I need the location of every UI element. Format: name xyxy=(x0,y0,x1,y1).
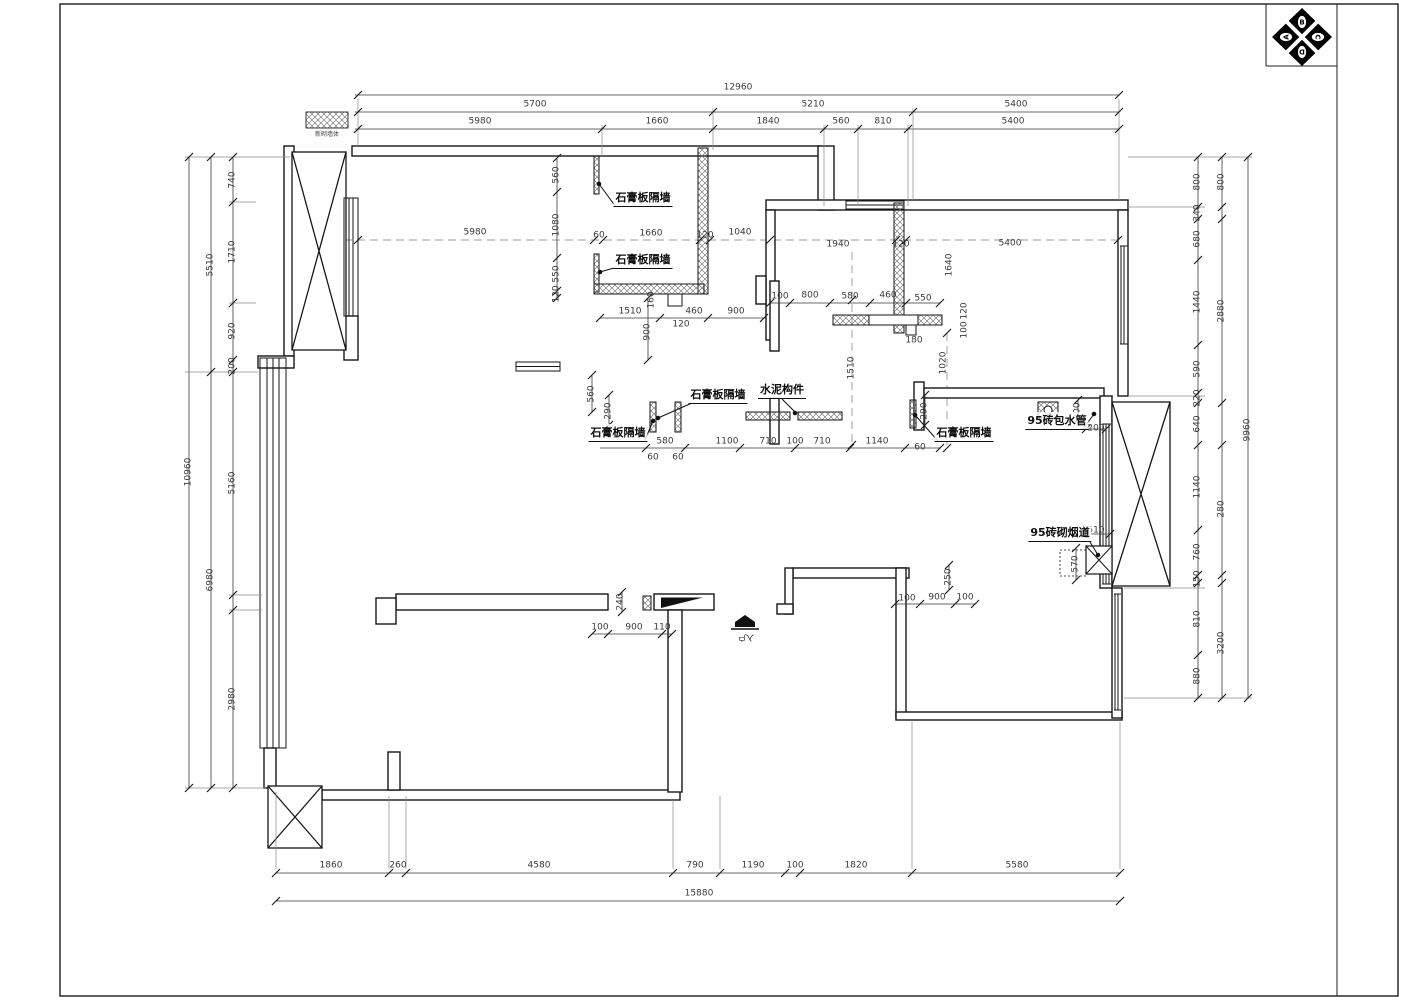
dim-label: 800 xyxy=(801,292,818,301)
dim-label: 1100 xyxy=(716,438,739,447)
dim-label: 1140 xyxy=(866,438,889,447)
dim-label: 760 xyxy=(1194,543,1203,560)
dim-label: 100 xyxy=(591,624,608,633)
dim-label: 250 xyxy=(945,568,954,585)
dim-label: 1860 xyxy=(320,862,343,871)
gypsum-wall-label: 石膏板隔墙 xyxy=(935,424,994,442)
dim-label: 5580 xyxy=(1006,862,1029,871)
dim-label: 120 xyxy=(892,241,909,250)
gypsum-wall-label: 石膏板隔墙 xyxy=(614,251,673,269)
dim-label: 1040 xyxy=(729,229,752,238)
dim-label: 5980 xyxy=(464,229,487,238)
entry-marker xyxy=(731,615,759,629)
dim-label: 290 xyxy=(605,402,614,419)
company-logo: A B C D xyxy=(1272,8,1332,66)
brick-flue-label: 95砖砌烟道 xyxy=(1028,524,1091,542)
dim-label: 160 xyxy=(648,291,657,308)
dim-label: 110 xyxy=(653,624,670,633)
dim-label: 560 xyxy=(553,166,562,183)
logo-letter-c: C xyxy=(1314,34,1322,39)
dim-label: 580 xyxy=(841,293,858,302)
floor-plan-sheet: A B C D xyxy=(0,0,1415,1000)
dim-label: 120 xyxy=(553,285,562,302)
dim-label: 60 xyxy=(672,454,683,463)
dim-label: 2980 xyxy=(229,688,238,711)
dim-label: 740 xyxy=(229,171,238,188)
dim-label: 900 xyxy=(625,624,642,633)
dim-label: 100 xyxy=(961,321,970,338)
dim-label: 810 xyxy=(1194,610,1203,627)
dim-label: 240 xyxy=(617,593,626,610)
dim-label: 10960 xyxy=(185,458,194,487)
dim-label: 810 xyxy=(874,118,891,127)
dim-label: 4580 xyxy=(528,862,551,871)
dim-label: 2880 xyxy=(1218,300,1227,323)
dim-label: 5400 xyxy=(1005,101,1028,110)
dim-label: 220 xyxy=(1194,389,1203,406)
dim-label: 260 xyxy=(389,862,406,871)
dim-label: 340 xyxy=(1194,204,1203,221)
dim-label: 120 xyxy=(961,302,970,319)
dim-label: 5510 xyxy=(207,254,216,277)
dim-label: 6980 xyxy=(207,569,216,592)
dim-label: 9960 xyxy=(1244,419,1253,442)
dim-label: 1640 xyxy=(946,254,955,277)
dim-label: 120 xyxy=(672,321,689,330)
new-walls-hatched xyxy=(594,148,1058,610)
dim-label: 100 xyxy=(956,594,973,603)
dim-label: 800 xyxy=(1218,173,1227,190)
dim-label: 1820 xyxy=(845,862,868,871)
dim-label: 60 xyxy=(914,444,925,453)
column-boxes xyxy=(268,152,1170,848)
dim-label: 1660 xyxy=(640,230,663,239)
dim-label: 100 xyxy=(786,438,803,447)
dim-label: 3200 xyxy=(1218,632,1227,655)
dim-label: 800 xyxy=(1194,173,1203,190)
dim-label: 1840 xyxy=(757,118,780,127)
dim-label: 570 xyxy=(1072,555,1081,572)
dim-label: 560 xyxy=(588,385,597,402)
dim-label: 12960 xyxy=(724,84,753,93)
dim-label: 1510 xyxy=(619,308,642,317)
dim-label: 100 xyxy=(786,862,803,871)
dim-label: 5980 xyxy=(469,118,492,127)
dim-label: 1190 xyxy=(742,862,765,871)
dim-label: 60 xyxy=(647,454,658,463)
dim-label: 1660 xyxy=(646,118,669,127)
dim-label: 710 xyxy=(759,438,776,447)
dimension-lines xyxy=(189,95,1248,901)
dim-label: 1940 xyxy=(827,241,850,250)
windows xyxy=(260,198,1128,748)
dim-label: 590 xyxy=(1194,360,1203,377)
logo-letter-a: A xyxy=(1283,34,1291,40)
gypsum-wall-label: 石膏板隔墙 xyxy=(614,189,673,207)
dim-label: 550 xyxy=(914,295,931,304)
dim-label: 5210 xyxy=(802,101,825,110)
dim-label: 5400 xyxy=(1002,118,1025,127)
dim-label: 280 xyxy=(1218,500,1227,517)
dim-label: 1080 xyxy=(553,214,562,237)
dim-label: 710 xyxy=(813,438,830,447)
dim-label: 100 xyxy=(771,293,788,302)
dim-label: 180 xyxy=(905,337,922,346)
dim-label: 640 xyxy=(1194,415,1203,432)
dim-label: 15880 xyxy=(685,890,714,899)
new-wall-legend-swatch xyxy=(306,112,348,128)
dim-label: 60 xyxy=(593,232,604,241)
logo-letter-b: B xyxy=(1299,19,1304,27)
dim-label: 460 xyxy=(879,292,896,301)
dim-label: 200 xyxy=(229,357,238,374)
dim-label: 900 xyxy=(727,308,744,317)
dim-label: 5160 xyxy=(229,472,238,495)
dim-label: 150 xyxy=(1194,570,1203,587)
dim-label: 900 xyxy=(644,323,653,340)
walls xyxy=(258,146,1128,800)
dim-label: 1510 xyxy=(848,357,857,380)
dim-label: 580 xyxy=(656,438,673,447)
floor-plan-canvas: A B C D xyxy=(0,0,1415,1000)
dim-label: 900 xyxy=(928,594,945,603)
logo-letter-d: D xyxy=(1299,48,1305,56)
dim-label: 290 xyxy=(921,402,930,419)
dim-label: 790 xyxy=(686,862,703,871)
dim-label: 1020 xyxy=(940,352,949,375)
brick-pipe-wrap-label: 95砖包水管 xyxy=(1025,412,1088,430)
dim-label: 550 xyxy=(553,265,562,282)
dim-label: 1140 xyxy=(1194,476,1203,499)
dim-label: 680 xyxy=(1194,230,1203,247)
dim-label: 100 xyxy=(898,595,915,604)
dim-label: 1710 xyxy=(229,241,238,264)
dim-label: 200 xyxy=(1087,425,1104,434)
gypsum-wall-label: 石膏板隔墙 xyxy=(689,386,748,404)
dim-label: 5400 xyxy=(999,240,1022,249)
gypsum-wall-label: 石膏板隔墙 xyxy=(589,424,648,442)
dim-label: 460 xyxy=(685,308,702,317)
flue-box xyxy=(1060,546,1112,576)
dim-label: 920 xyxy=(229,322,238,339)
dim-label: 880 xyxy=(1194,667,1203,684)
entry-label: 入户 xyxy=(738,633,754,641)
dim-label: 5700 xyxy=(524,101,547,110)
cement-member-label: 水泥构件 xyxy=(758,381,806,399)
dim-label: 1440 xyxy=(1194,291,1203,314)
dim-label: 120 xyxy=(696,232,713,241)
legend-caption: 新砌墙体 xyxy=(315,129,339,138)
dim-label: 560 xyxy=(832,118,849,127)
